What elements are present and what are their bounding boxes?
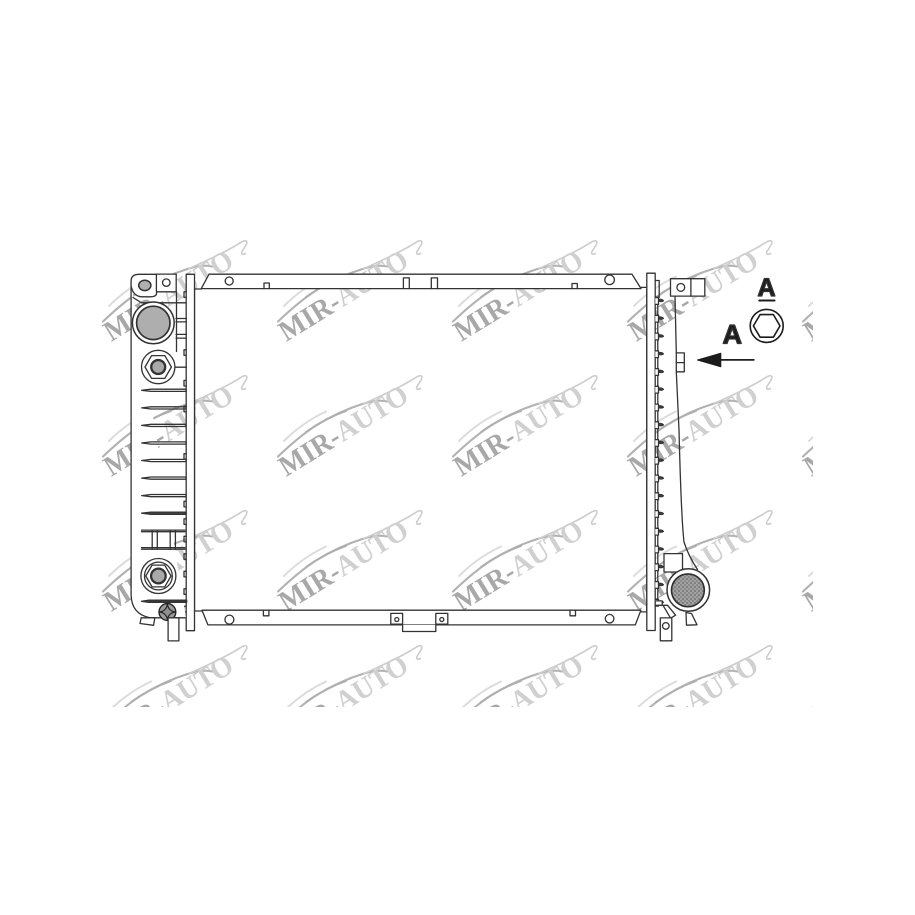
svg-text:A: A [723,319,743,349]
svg-text:A: A [758,274,776,302]
